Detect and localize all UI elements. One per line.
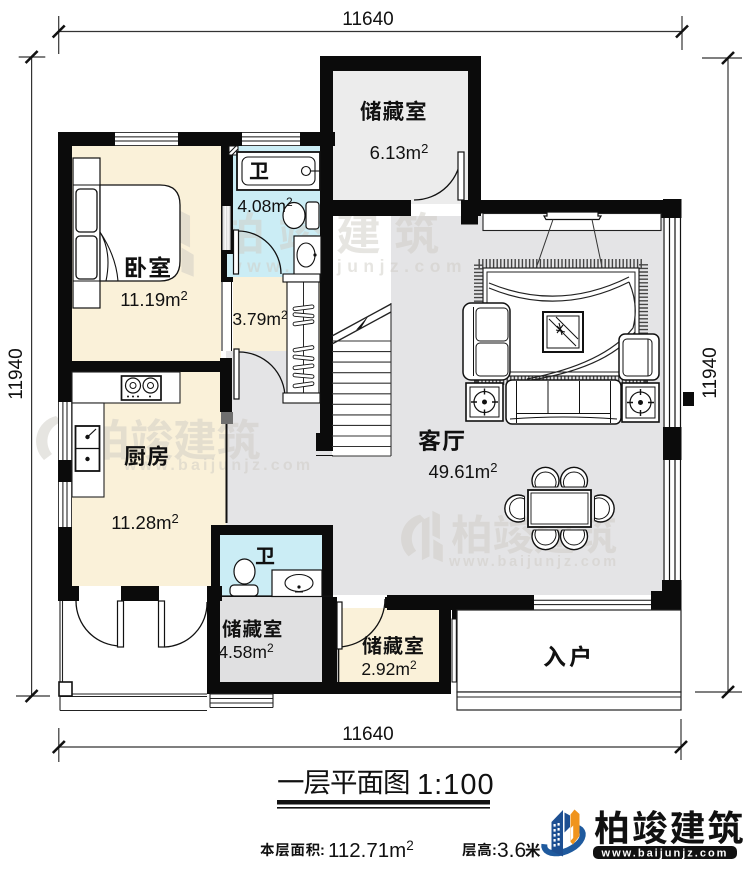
svg-text:11.28m2: 11.28m2 xyxy=(111,511,179,533)
svg-text:112.71m2: 112.71m2 xyxy=(328,838,414,862)
svg-text:www.baijunjz.com: www.baijunjz.com xyxy=(448,554,619,570)
svg-text:11940: 11940 xyxy=(6,348,27,399)
svg-text:6.13m2: 6.13m2 xyxy=(370,141,429,163)
svg-text:11640: 11640 xyxy=(342,9,393,30)
svg-text:www.baijunjz.com: www.baijunjz.com xyxy=(227,256,467,276)
svg-text:11.19m2: 11.19m2 xyxy=(120,288,188,310)
svg-text::: : xyxy=(320,843,325,859)
svg-text:11940: 11940 xyxy=(700,347,721,398)
svg-text:2.92m2: 2.92m2 xyxy=(361,658,417,679)
svg-text:1:100: 1:100 xyxy=(417,769,495,801)
svg-text:49.61m2: 49.61m2 xyxy=(429,460,498,482)
svg-text:www.baijunjz.com: www.baijunjz.com xyxy=(601,848,729,860)
svg-text:4.08m2: 4.08m2 xyxy=(237,195,293,216)
svg-text:3.6: 3.6 xyxy=(497,839,526,862)
svg-text:3.79m2: 3.79m2 xyxy=(232,308,288,329)
svg-text:4.58m2: 4.58m2 xyxy=(218,641,274,662)
svg-text:11640: 11640 xyxy=(342,724,393,745)
